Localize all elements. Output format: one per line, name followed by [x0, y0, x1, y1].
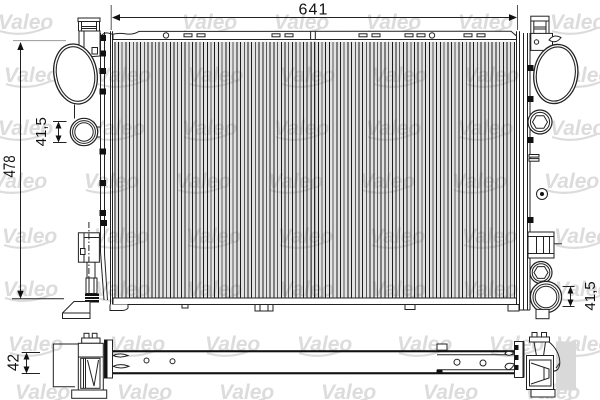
svg-text:641: 641	[299, 2, 329, 19]
svg-text:42: 42	[5, 354, 22, 371]
svg-text:478: 478	[0, 155, 19, 177]
svg-text:41,5: 41,5	[33, 117, 50, 146]
svg-text:41,5: 41,5	[582, 281, 599, 310]
